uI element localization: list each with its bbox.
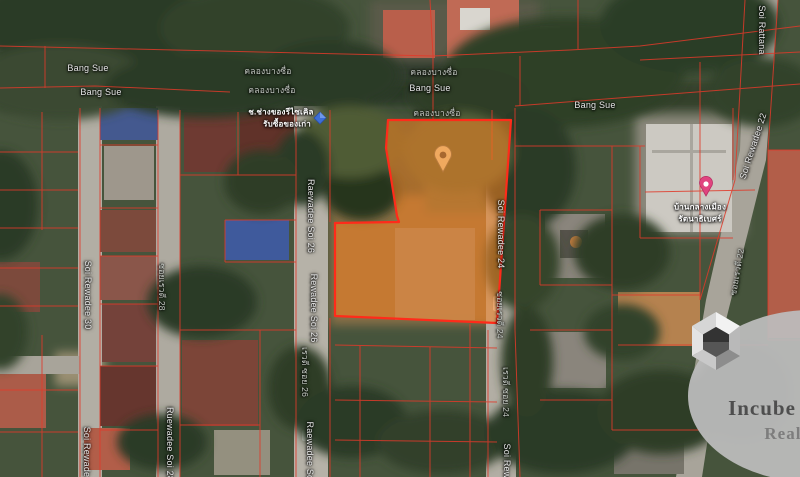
watermark-brand-text: Incube	[702, 396, 800, 421]
satellite-map-canvas[interactable]: Bang Sue Bang Sue คลองบางซื่อ คลองบางซื่…	[0, 0, 800, 477]
watermark-word-text: Realty	[736, 424, 800, 444]
blue-roof-building	[225, 220, 289, 260]
satellite-imagery	[0, 0, 800, 477]
cube-logo-icon	[688, 310, 744, 372]
white-building	[646, 124, 732, 232]
